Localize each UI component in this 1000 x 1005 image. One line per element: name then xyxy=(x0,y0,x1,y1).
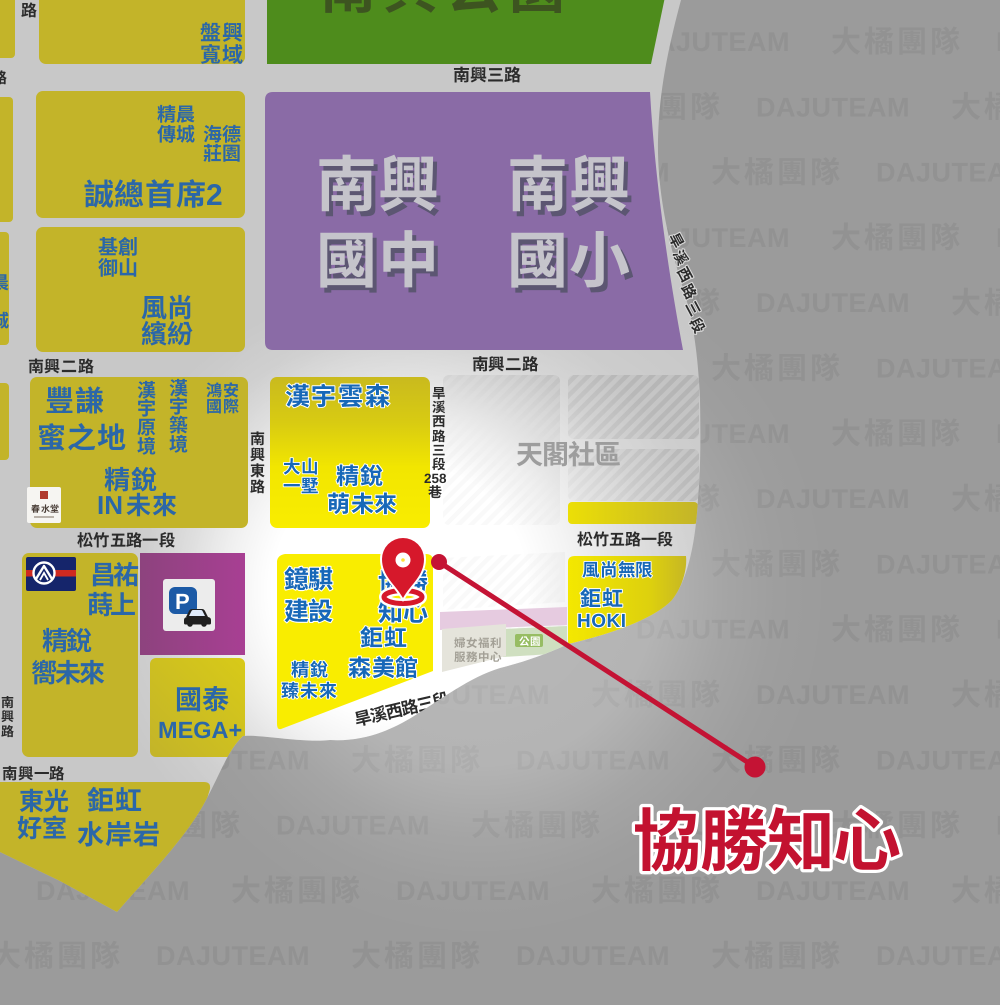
svg-text:HOKI: HOKI xyxy=(577,611,627,632)
svg-text:DAJUTEAM: DAJUTEAM xyxy=(156,941,310,971)
svg-text:IN: IN xyxy=(97,490,123,520)
svg-text:DAJUTEAM: DAJUTEAM xyxy=(876,745,1000,775)
svg-text:258: 258 xyxy=(424,471,447,486)
svg-text:DAJUTEAM: DAJUTEAM xyxy=(756,876,910,906)
svg-text:DAJUTEAM: DAJUTEAM xyxy=(996,223,1000,253)
svg-text:DAJUTEAM: DAJUTEAM xyxy=(756,92,910,122)
svg-text:DAJUTEAM: DAJUTEAM xyxy=(876,158,1000,188)
svg-text:MEGA+: MEGA+ xyxy=(158,717,242,743)
svg-text:DAJUTEAM: DAJUTEAM xyxy=(996,419,1000,449)
svg-text:DAJUTEAM: DAJUTEAM xyxy=(996,811,1000,841)
svg-text:DAJUTEAM: DAJUTEAM xyxy=(876,549,1000,579)
svg-text:DAJUTEAM: DAJUTEAM xyxy=(876,354,1000,384)
svg-text:DAJUTEAM: DAJUTEAM xyxy=(876,941,1000,971)
svg-text:DAJUTEAM: DAJUTEAM xyxy=(516,941,670,971)
svg-text:DAJUTEAM: DAJUTEAM xyxy=(996,615,1000,645)
svg-text:2: 2 xyxy=(206,179,223,212)
svg-text:DAJUTEAM: DAJUTEAM xyxy=(996,27,1000,57)
svg-text:P: P xyxy=(175,589,190,614)
svg-text:DAJUTEAM: DAJUTEAM xyxy=(756,288,910,318)
